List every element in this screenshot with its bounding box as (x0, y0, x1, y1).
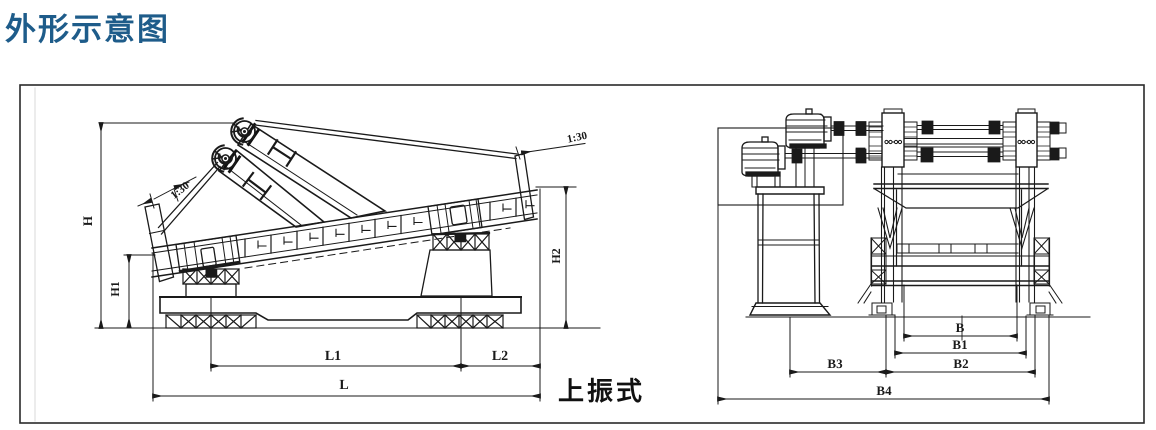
svg-text:B3: B3 (827, 356, 843, 371)
svg-text:1:30: 1:30 (169, 179, 193, 201)
svg-text:H1: H1 (108, 281, 122, 296)
svg-text:B1: B1 (952, 337, 967, 352)
svg-text:B: B (956, 320, 965, 335)
svg-text:H: H (80, 216, 95, 226)
svg-text:L1: L1 (325, 349, 341, 364)
svg-text:L: L (339, 378, 348, 393)
svg-text:B4: B4 (876, 383, 892, 398)
svg-text:H2: H2 (549, 248, 563, 263)
svg-text:B2: B2 (953, 356, 968, 371)
svg-text:上振式: 上振式 (558, 377, 645, 406)
svg-text:L2: L2 (492, 349, 508, 364)
